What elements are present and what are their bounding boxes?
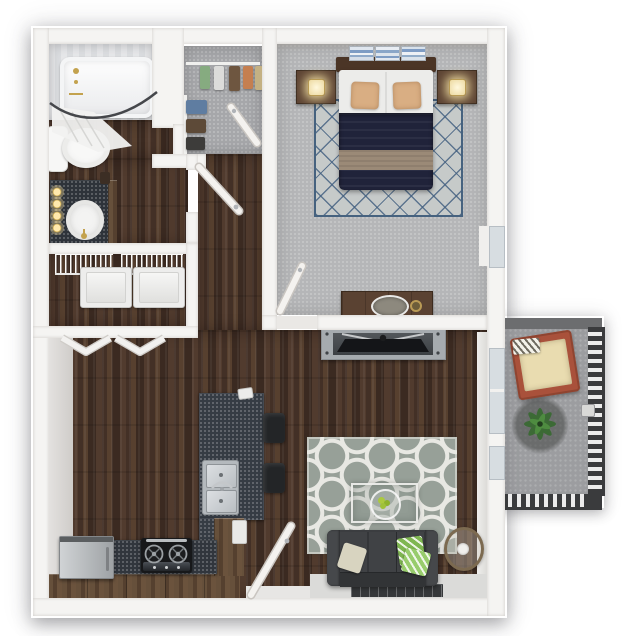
closet-top-rod <box>186 62 260 65</box>
lounge-chair <box>510 330 581 401</box>
washer-lid <box>86 272 126 303</box>
range-knob-1 <box>153 566 156 569</box>
sink-drain-bottom <box>219 499 223 503</box>
sink-drain-top <box>219 473 223 477</box>
wall-art-panel-2 <box>375 46 400 61</box>
tv-console-inset <box>333 333 433 355</box>
balcony-sliding-door <box>489 348 505 434</box>
side-table <box>444 527 484 571</box>
bed <box>339 70 433 190</box>
entry-door-threshold <box>246 586 310 598</box>
nightstand-right <box>437 70 477 104</box>
island-sink <box>202 460 239 515</box>
bed-pillow-left <box>351 82 380 110</box>
sofa <box>327 530 438 586</box>
bar-stool-2 <box>263 463 285 493</box>
dryer-lid <box>139 272 179 303</box>
range-stove <box>141 538 192 573</box>
wall-bath-hall-stub-top <box>186 154 198 170</box>
wall-art-panel-3 <box>401 46 426 61</box>
sliding-door-mullion <box>490 389 504 392</box>
toilet-bowl <box>62 128 110 168</box>
bed-runner-tan <box>339 150 433 170</box>
dresser-gold-knob <box>410 300 422 312</box>
wall-bottom <box>33 598 505 616</box>
wall-bedroom-living-right <box>317 315 487 330</box>
wall-art-panel-1 <box>349 46 374 61</box>
sofa-back <box>340 572 425 587</box>
range-knob-2 <box>165 566 168 569</box>
living-window <box>489 446 505 480</box>
island-paper-towel <box>237 387 253 400</box>
wall-bath-hall-stub-bottom <box>186 212 198 243</box>
side-table-cup <box>457 543 469 555</box>
balcony-gate-latch <box>581 404 595 417</box>
bar-stool-1 <box>263 413 285 443</box>
wall-left <box>33 28 49 616</box>
nightstand-right-lamp <box>449 79 466 96</box>
bathtub <box>60 57 154 118</box>
wall-laundry-right <box>186 243 198 338</box>
coffee-table <box>351 483 418 523</box>
bed-pillow-right <box>393 82 422 110</box>
balcony-railing-corner-post <box>588 494 602 507</box>
closet-clothes-orange <box>243 66 253 89</box>
closet-clothes-white <box>214 66 224 90</box>
bedroom-window <box>489 226 505 268</box>
refrigerator-handles <box>106 547 109 571</box>
floor-plan-stage <box>0 0 639 636</box>
vanity-side-panel <box>108 180 117 246</box>
bedroom-window-sill <box>479 226 489 266</box>
vanity-soap-bottle <box>100 172 110 184</box>
closet-clothes-brown <box>229 66 240 91</box>
wall-closet-bedroom-vertical <box>262 28 277 330</box>
wall-bedroom-living-left <box>262 315 277 330</box>
range-handle-bar <box>146 539 187 542</box>
sofa-arm-left <box>327 530 340 586</box>
range-knob-3 <box>177 566 180 569</box>
refrigerator-top-trim <box>60 537 113 542</box>
bed-sheet-crease <box>385 72 387 116</box>
closet-clothes-brown2 <box>186 119 206 133</box>
wall-laundry-bottom <box>33 326 198 338</box>
closet-clothes-charcoal <box>186 137 205 150</box>
closet-clothes-blue <box>186 100 207 114</box>
dryer <box>133 267 185 308</box>
closet-clothes-green <box>200 66 210 89</box>
wall-bath-closet-lower <box>173 124 184 158</box>
dishwasher-panel <box>232 520 247 544</box>
refrigerator <box>59 536 114 579</box>
hallway-floor <box>198 154 262 332</box>
wall-bath-laundry <box>49 243 188 254</box>
tv-console <box>321 329 446 360</box>
nightstand-left-lamp <box>308 79 325 96</box>
wall-bath-closet-upper <box>152 28 184 128</box>
lounge-chair-pillow <box>512 338 540 355</box>
vanity-sink <box>66 200 104 240</box>
fruit-green-3 <box>380 503 386 509</box>
balcony-plant-pad <box>512 396 568 454</box>
washer <box>80 267 132 308</box>
nightstand-left <box>296 70 336 104</box>
wall-right <box>487 28 505 616</box>
bedroom-door-threshold <box>277 316 317 329</box>
